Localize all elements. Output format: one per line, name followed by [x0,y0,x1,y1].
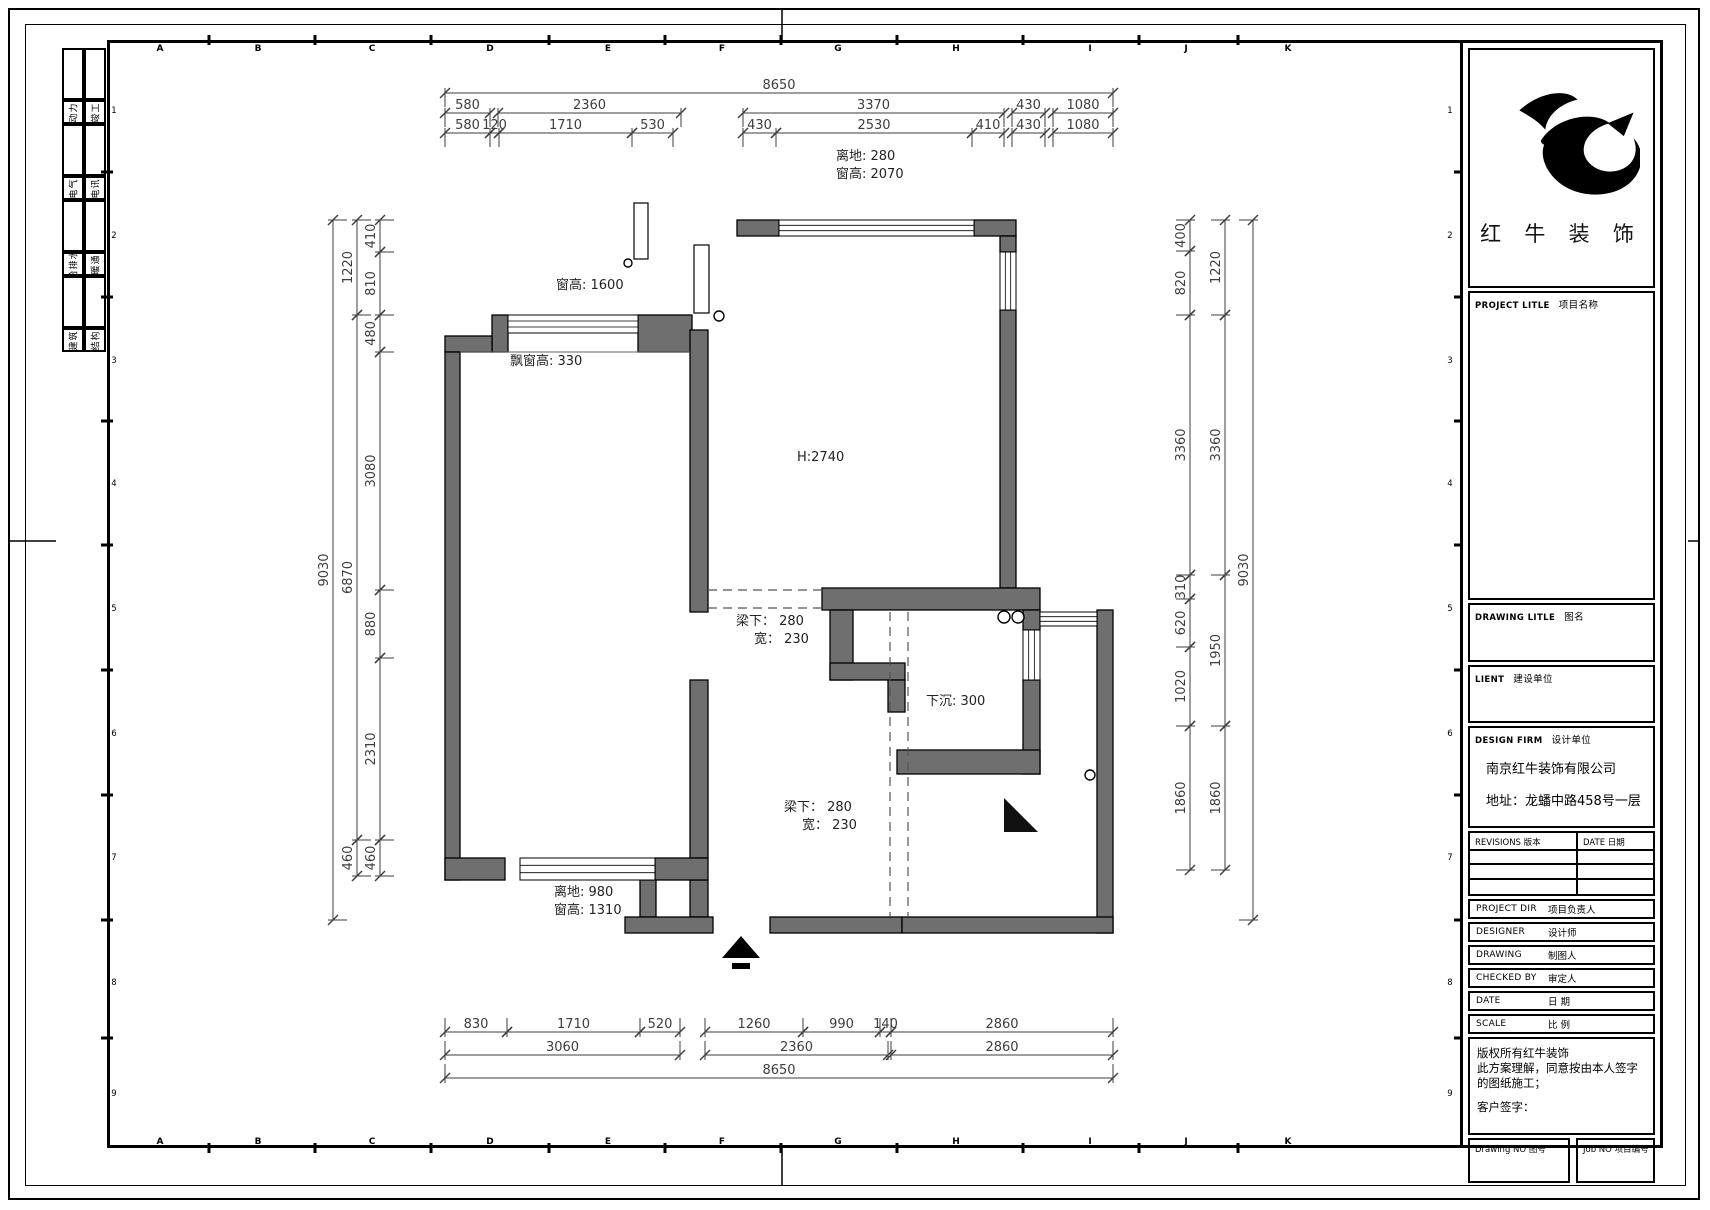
grid-letter: J [1183,1137,1187,1147]
dim-label: 1710 [549,118,582,133]
dim-label: 2860 [985,1040,1018,1055]
grid-number: 3 [111,356,116,366]
door-leaf [694,245,709,313]
window-hatch [508,315,638,333]
grid-letter: B [255,44,262,54]
door-hinge-circle [714,311,724,321]
plan-label-beam1-line1: 梁下： 280 [736,614,804,629]
grid-letter: E [605,44,611,54]
grid-letter: I [1088,1137,1091,1147]
dim-label: 9030 [317,553,332,586]
grid-number: 1 [1447,106,1452,116]
grid-tick [1237,1143,1240,1153]
dim-label: 400 [1174,223,1189,248]
grid-number: 2 [111,231,116,241]
entry-arrow-icon [722,936,760,958]
dim-label: 3080 [364,454,379,487]
drawing-title-label-cn: 图名 [1564,609,1584,623]
grid-letter: F [719,1137,725,1147]
dim-label: 480 [364,321,379,346]
firm-address: 地址：龙蟠中路458号一层 [1486,786,1653,818]
grid-tick [430,35,433,45]
grid-letter: A [157,1137,164,1147]
grid-letter: E [605,1137,611,1147]
grid-letter: K [1285,44,1293,54]
grid-letter: D [486,44,493,54]
plan-label-beam2-line1: 梁下： 280 [784,800,852,815]
door-leaf [634,203,648,259]
dim-label: 410 [364,224,379,249]
grid-number: 9 [111,1089,116,1099]
copyright-line2: 此方案理解，同意按由本人签字的图纸施工； [1477,1061,1647,1091]
dim-label: 880 [364,612,379,637]
dim-label: 3370 [857,98,890,113]
title-block: 红 牛 装 饰 PROJECT LITLE 项目名称 DRAWING LITLE… [1460,40,1663,1148]
dim-label: 520 [648,1017,673,1032]
dim-label: 2360 [780,1040,813,1055]
grid-number: 4 [1447,479,1452,489]
window-hatch [520,858,655,880]
grid-letter: F [719,44,725,54]
dim-label: 1710 [557,1017,590,1032]
grid-letter: A [157,44,164,54]
grid-tick [314,1143,317,1153]
grid-tick [101,794,113,797]
door-swing-icon [1004,798,1038,832]
grid-tick [664,35,667,45]
dim-label: 9030 [1237,553,1252,586]
plumbing-stack-circle [998,611,1010,623]
dim-label: 990 [829,1017,854,1032]
number-row: Drawing NO 图号 Job NO 项目编号 [1468,1138,1655,1183]
grid-number: 5 [111,604,116,614]
drawing-sheet: 动力电气给排水建筑竣工电讯暖通结构 离地: 280窗高: 2070窗高: 160… [0,0,1710,1210]
design-firm-label-cn: 设计单位 [1552,732,1592,746]
project-title-label-en: PROJECT LITLE [1475,301,1550,311]
wall-segment [640,880,656,917]
dim-label: 6870 [341,561,356,594]
wall-segment [830,663,905,680]
dim-label: 3060 [546,1040,579,1055]
date-row: DATE日 期 [1468,991,1655,1011]
drawing-by-row: DRAWING制图人 [1468,945,1655,965]
client-signature-label: 客户签字： [1477,1100,1647,1115]
wall-segment [625,917,713,933]
grid-tick [1138,1143,1141,1153]
wall-segment [897,750,1040,774]
grid-number: 8 [1447,978,1452,988]
grid-letter: I [1088,44,1091,54]
grid-tick [1237,35,1240,45]
grid-letter: G [834,1137,841,1147]
revision-date-cell [1578,865,1653,879]
revision-cell [1470,880,1578,894]
grid-tick [548,1143,551,1153]
design-firm-label-en: DESIGN FIRM [1475,736,1543,746]
drawing-title-panel: DRAWING LITLE 图名 [1468,603,1655,662]
grid-letter: H [952,44,960,54]
grid-number: 1 [111,106,116,116]
door-hinge-circle [624,259,632,267]
client-label-en: LIENT [1475,675,1504,685]
wall-segment [690,330,708,612]
plan-label-bottom-window-height: 窗高: 1310 [554,902,622,918]
grid-tick [1022,1143,1025,1153]
client-panel: LIENT 建设单位 [1468,665,1655,723]
window-hatch [1023,630,1040,680]
wall-segment [1000,236,1016,252]
grid-number: 4 [111,479,116,489]
grid-letter: C [369,44,376,54]
grid-letter: B [255,1137,262,1147]
grid-tick [101,669,113,672]
plan-label-left-window-height: 窗高: 1600 [556,277,624,293]
dim-label: 120 [482,118,507,133]
copyright-panel: 版权所有红牛装饰 此方案理解，同意按由本人签字的图纸施工； 客户签字： [1468,1037,1655,1135]
dim-label: 460 [341,846,356,871]
dim-label: 810 [364,271,379,296]
plan-label-beam1-line2: 宽： 230 [754,631,809,647]
grid-tick [314,35,317,45]
floor-plan-canvas: 离地: 280窗高: 2070窗高: 1600飘窗高: 330H:2740梁下：… [0,0,1710,1210]
wall-segment [1097,610,1113,933]
dim-label: 8650 [762,1063,795,1078]
plan-label-bay-window-height: 飘窗高: 330 [510,353,582,369]
grid-tick [430,1143,433,1153]
dim-label: 2860 [985,1017,1018,1032]
grid-letter: K [1285,1137,1293,1147]
dim-label: 430 [1016,98,1041,113]
dim-label: 460 [364,846,379,871]
wall-segment [974,220,1016,236]
wall-segment [445,858,505,880]
revision-date-cell [1578,851,1653,865]
grid-tick [1022,35,1025,45]
wall-segment [822,588,1040,610]
window-hatch [779,220,974,236]
client-label-cn: 建设单位 [1513,671,1553,685]
grid-number: 3 [1447,356,1452,366]
dim-label: 430 [747,118,772,133]
revision-date-cell [1578,880,1653,894]
wall-segment [690,880,708,917]
grid-letter: J [1183,44,1187,54]
dim-label: 530 [640,118,665,133]
copyright-line1: 版权所有红牛装饰 [1477,1046,1647,1061]
dim-label: 580 [455,98,480,113]
grid-tick [101,544,113,547]
plan-label-sunken-floor: 下沉: 300 [926,694,985,709]
grid-tick [664,1143,667,1153]
wall-segment [690,680,708,858]
design-firm-panel: DESIGN FIRM 设计单位 南京红牛装饰有限公司 地址：龙蟠中路458号一… [1468,726,1655,828]
wall-segment [1023,610,1040,630]
logo-panel: 红 牛 装 饰 [1468,48,1655,288]
dim-label: 1020 [1174,670,1189,703]
dim-label: 1080 [1066,118,1099,133]
dim-label: 2530 [857,118,890,133]
wall-segment [445,336,492,352]
dim-label: 1220 [1209,251,1224,284]
revision-date-header: DATE 日期 [1578,833,1653,851]
dim-label: 2360 [573,98,606,113]
grid-number: 9 [1447,1089,1452,1099]
grid-number: 7 [1447,853,1452,863]
dim-label: 410 [976,118,1001,133]
dim-label: 310 [1174,575,1189,600]
grid-tick [896,1143,899,1153]
wall-segment [902,917,1113,933]
plan-label-top-window-height: 窗高: 2070 [836,166,904,182]
revision-cell [1470,851,1578,865]
grid-number: 6 [1447,729,1452,739]
dim-label: 1950 [1209,634,1224,667]
dim-label: 620 [1174,611,1189,636]
grid-tick [1138,35,1141,45]
plan-label-beam2-line2: 宽： 230 [802,817,857,833]
grid-number: 6 [111,729,116,739]
dim-label: 1220 [341,251,356,284]
firm-phone: 电话：025-52228155 [1486,818,1653,828]
grid-number: 7 [111,853,116,863]
plan-label-ceiling-height: H:2740 [797,450,844,465]
wall-segment [770,917,902,933]
job-no-box: Job NO 项目编号 [1576,1138,1655,1183]
grid-tick [101,171,113,174]
wall-segment [638,315,692,352]
dim-label: 430 [1016,118,1041,133]
dim-label: 2310 [364,732,379,765]
project-title-label-cn: 项目名称 [1559,297,1599,311]
scale-row: SCALE比 例 [1468,1014,1655,1034]
grid-number: 2 [1447,231,1452,241]
project-director-row: PROJECT DIR项目负责人 [1468,899,1655,919]
drawing-no-box: Drawing NO 图号 [1468,1138,1570,1183]
dim-label: 820 [1174,271,1189,296]
dim-label: 8650 [762,78,795,93]
dim-label: 3360 [1209,428,1224,461]
dim-label: 1860 [1174,781,1189,814]
project-title-panel: PROJECT LITLE 项目名称 [1468,291,1655,600]
grid-tick [896,35,899,45]
wall-segment [655,858,708,880]
plan-label-top-window-offset: 离地: 280 [836,148,895,164]
grid-tick [101,1037,113,1040]
wall-segment [445,352,460,880]
window-hatch [1000,252,1016,310]
dim-label: 580 [455,118,480,133]
grid-tick [101,296,113,299]
grid-tick [101,919,113,922]
dim-label: 1860 [1209,781,1224,814]
wall-segment [492,315,508,352]
grid-tick [548,35,551,45]
dim-label: 1080 [1066,98,1099,113]
grid-letter: H [952,1137,960,1147]
revision-cell [1470,865,1578,879]
grid-number: 8 [111,978,116,988]
wall-segment [1000,310,1016,588]
grid-tick [101,420,113,423]
brand-logo-icon [1500,88,1640,208]
drawing-title-label-en: DRAWING LITLE [1475,613,1555,623]
designer-row: DESIGNER设计师 [1468,922,1655,942]
grid-letter: G [834,44,841,54]
window-hatch [1040,612,1097,626]
entry-arrow-bar [732,963,750,969]
dim-label: 1260 [737,1017,770,1032]
grid-tick [208,35,211,45]
plan-label-bottom-window-offset: 离地: 980 [554,884,613,900]
firm-name: 南京红牛装饰有限公司 [1486,754,1653,786]
plumbing-stack-circle [1012,611,1024,623]
dim-label: 3360 [1174,428,1189,461]
revisions-table: REVISIONS 版本 DATE 日期 [1468,831,1655,896]
revisions-header: REVISIONS 版本 [1470,833,1578,851]
grid-number: 5 [1447,604,1452,614]
checked-by-row: CHECKED BY审定人 [1468,968,1655,988]
grid-tick [208,1143,211,1153]
brand-name: 红 牛 装 饰 [1470,218,1653,248]
grid-letter: C [369,1137,376,1147]
plumbing-stack-circle [1085,770,1095,780]
dim-label: 830 [464,1017,489,1032]
wall-segment [737,220,779,236]
grid-letter: D [486,1137,493,1147]
